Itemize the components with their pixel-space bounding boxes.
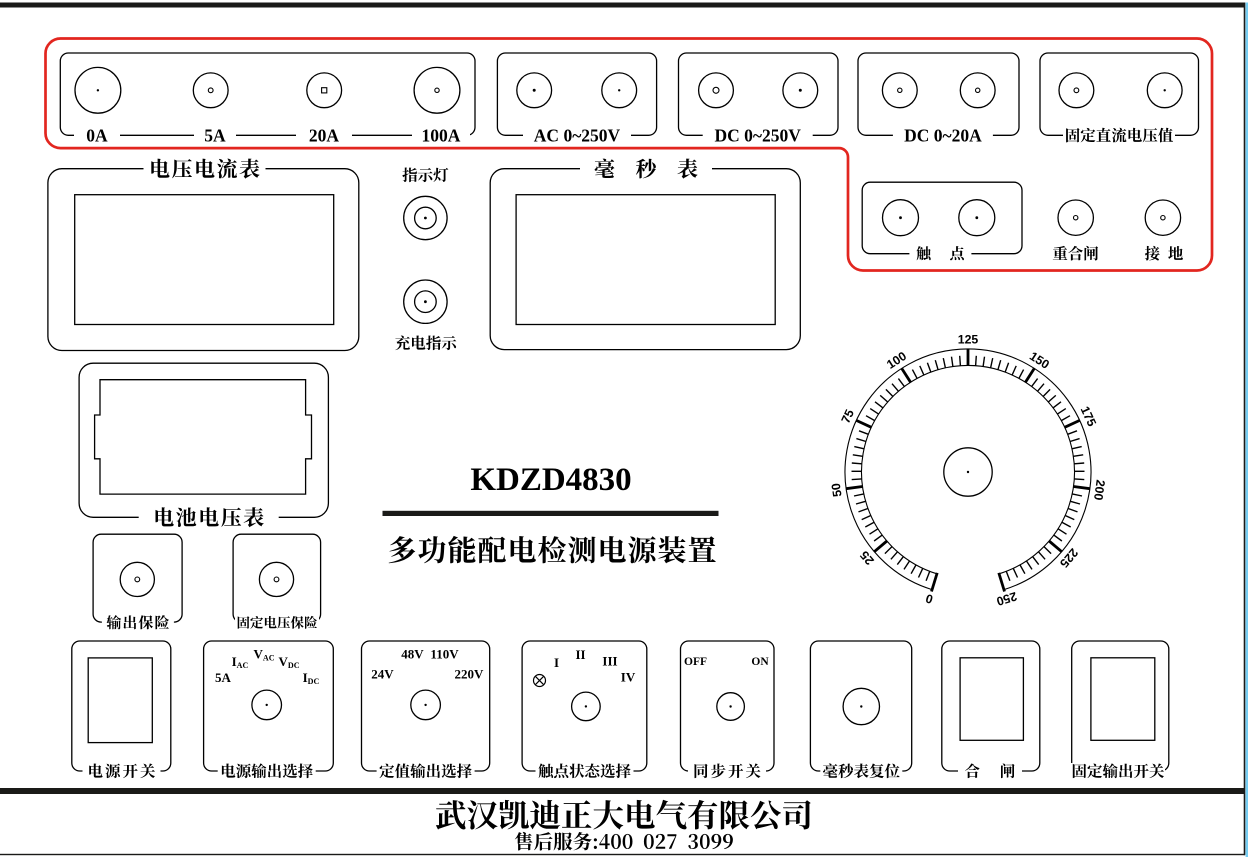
svg-text:DC 0~20A: DC 0~20A xyxy=(904,125,982,145)
svg-text:200: 200 xyxy=(1091,479,1108,501)
svg-text:III: III xyxy=(602,654,617,669)
svg-text:IV: IV xyxy=(621,670,636,685)
svg-text:48V: 48V xyxy=(401,647,424,662)
svg-text:5A: 5A xyxy=(215,670,232,685)
svg-text:ON: ON xyxy=(751,656,769,668)
svg-text:II: II xyxy=(575,647,585,662)
svg-text:100A: 100A xyxy=(422,125,461,145)
svg-text:0A: 0A xyxy=(86,125,108,145)
svg-text:24V: 24V xyxy=(371,667,394,682)
svg-text:I: I xyxy=(554,655,559,670)
svg-text:110V: 110V xyxy=(430,647,459,662)
svg-text:DC 0~250V: DC 0~250V xyxy=(715,125,802,145)
svg-text:5A: 5A xyxy=(204,125,226,145)
svg-text:20A: 20A xyxy=(309,125,340,145)
svg-text:50: 50 xyxy=(829,482,845,498)
svg-text:AC 0~250V: AC 0~250V xyxy=(534,125,621,145)
svg-text:125: 125 xyxy=(958,333,979,347)
svg-text:KDZD4830: KDZD4830 xyxy=(470,462,631,498)
svg-text:220V: 220V xyxy=(455,667,485,682)
svg-text:OFF: OFF xyxy=(684,656,707,668)
